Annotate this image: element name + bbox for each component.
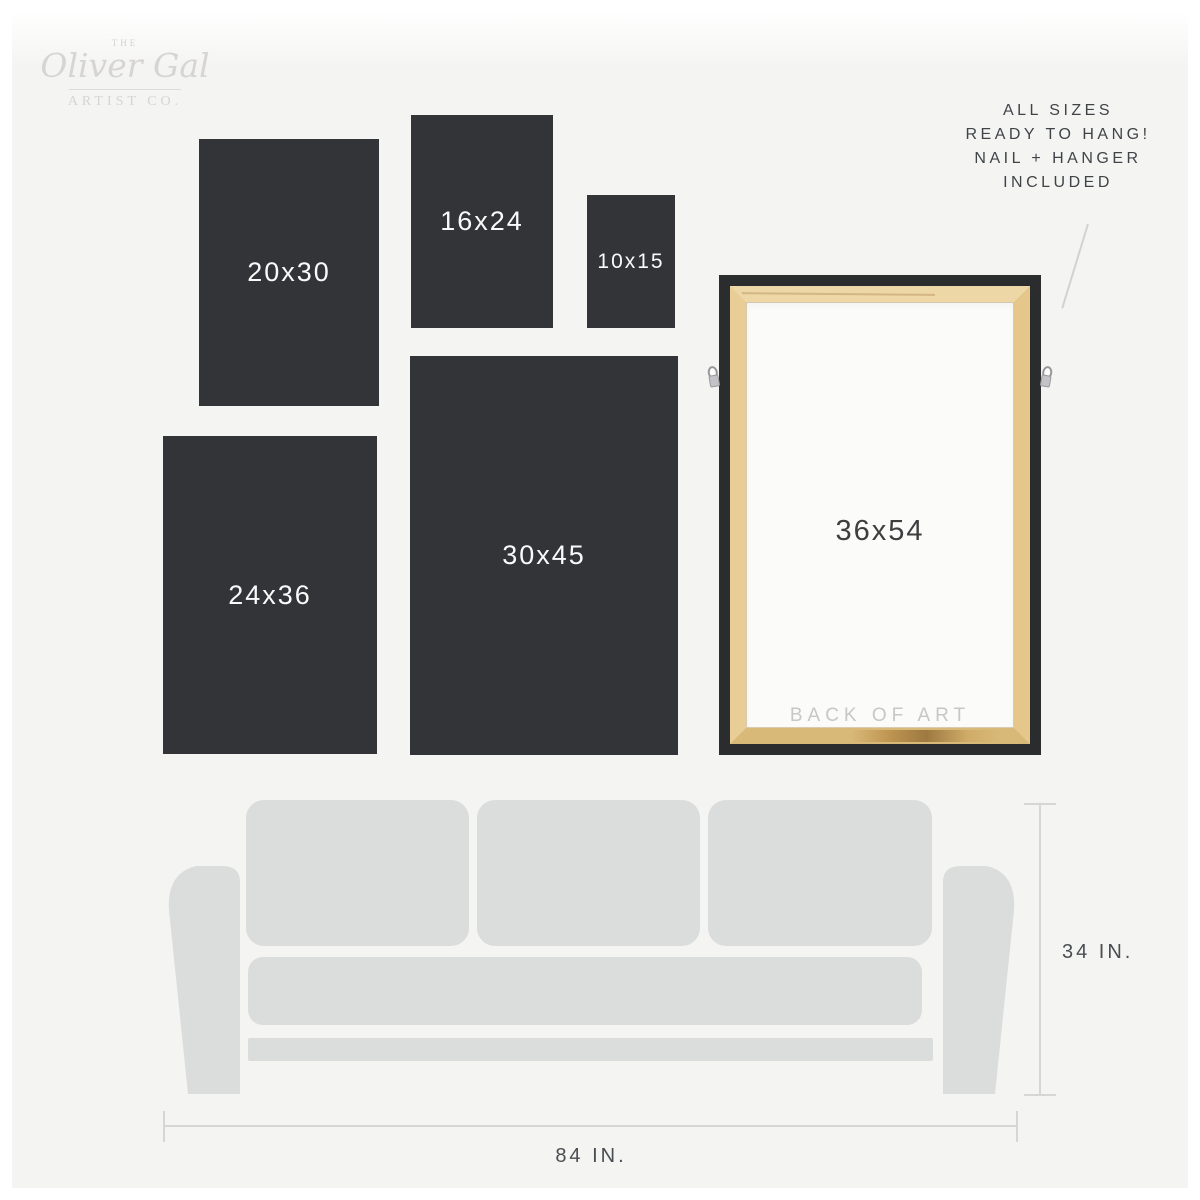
couch-seat-cushion — [248, 957, 922, 1025]
d-ring-plate — [1040, 374, 1052, 388]
width-dimension-line — [164, 1125, 1017, 1127]
note-line-4: INCLUDED — [946, 171, 1170, 195]
note-line-1: ALL SIZES — [946, 99, 1170, 123]
note-pointer-line — [1061, 224, 1089, 309]
couch-back-cushion — [246, 800, 469, 946]
wood-knot — [851, 730, 1001, 742]
logo-script-text: Oliver Gal — [40, 48, 210, 84]
size-box-10x15: 10x15 — [587, 195, 675, 328]
couch-back-cushion — [708, 800, 932, 946]
size-box-30x45: 30x45 — [410, 356, 678, 755]
couch-base — [248, 1038, 933, 1061]
d-ring-hanger-icon — [1036, 365, 1056, 394]
size-box-20x30: 20x30 — [199, 139, 379, 406]
wood-grain-seam — [742, 292, 935, 296]
note-line-2: READY TO HANG! — [946, 123, 1170, 147]
logo-subtitle-text: ARTIST CO. — [40, 94, 210, 110]
height-dimension-tick-top — [1024, 803, 1056, 805]
framed-art-back-36x54: 36x54 BACK OF ART — [719, 275, 1041, 755]
size-label-30x45: 30x45 — [502, 540, 586, 571]
size-label-36x54: 36x54 — [746, 515, 1014, 548]
ready-to-hang-note: ALL SIZES READY TO HANG! NAIL + HANGER I… — [946, 99, 1170, 195]
size-box-24x36: 24x36 — [163, 436, 377, 754]
note-line-3: NAIL + HANGER — [946, 147, 1170, 171]
d-ring-hanger-icon — [704, 365, 724, 394]
size-label-20x30: 20x30 — [247, 257, 331, 288]
couch-width-label: 84 IN. — [521, 1145, 661, 1168]
height-dimension-tick-bottom — [1024, 1094, 1056, 1096]
size-label-16x24: 16x24 — [440, 206, 524, 237]
size-label-10x15: 10x15 — [597, 250, 664, 274]
size-label-24x36: 24x36 — [228, 580, 312, 611]
wood-stretcher-bars: 36x54 BACK OF ART — [730, 286, 1030, 744]
d-ring-plate — [708, 374, 720, 388]
size-chart-canvas: THE Oliver Gal ARTIST CO. ALL SIZES READ… — [0, 0, 1200, 1200]
width-dimension-tick-left — [163, 1111, 165, 1142]
height-dimension-line — [1039, 804, 1041, 1096]
couch-height-label: 34 IN. — [1062, 941, 1172, 964]
back-of-art-label: BACK OF ART — [746, 705, 1014, 727]
logo-divider — [69, 89, 181, 90]
couch-arm-right — [943, 866, 1017, 1094]
brand-logo: THE Oliver Gal ARTIST CO. — [40, 38, 210, 110]
size-box-16x24: 16x24 — [411, 115, 553, 328]
couch-back-cushion — [477, 800, 700, 946]
width-dimension-tick-right — [1016, 1111, 1018, 1142]
couch-arm-left — [166, 866, 240, 1094]
